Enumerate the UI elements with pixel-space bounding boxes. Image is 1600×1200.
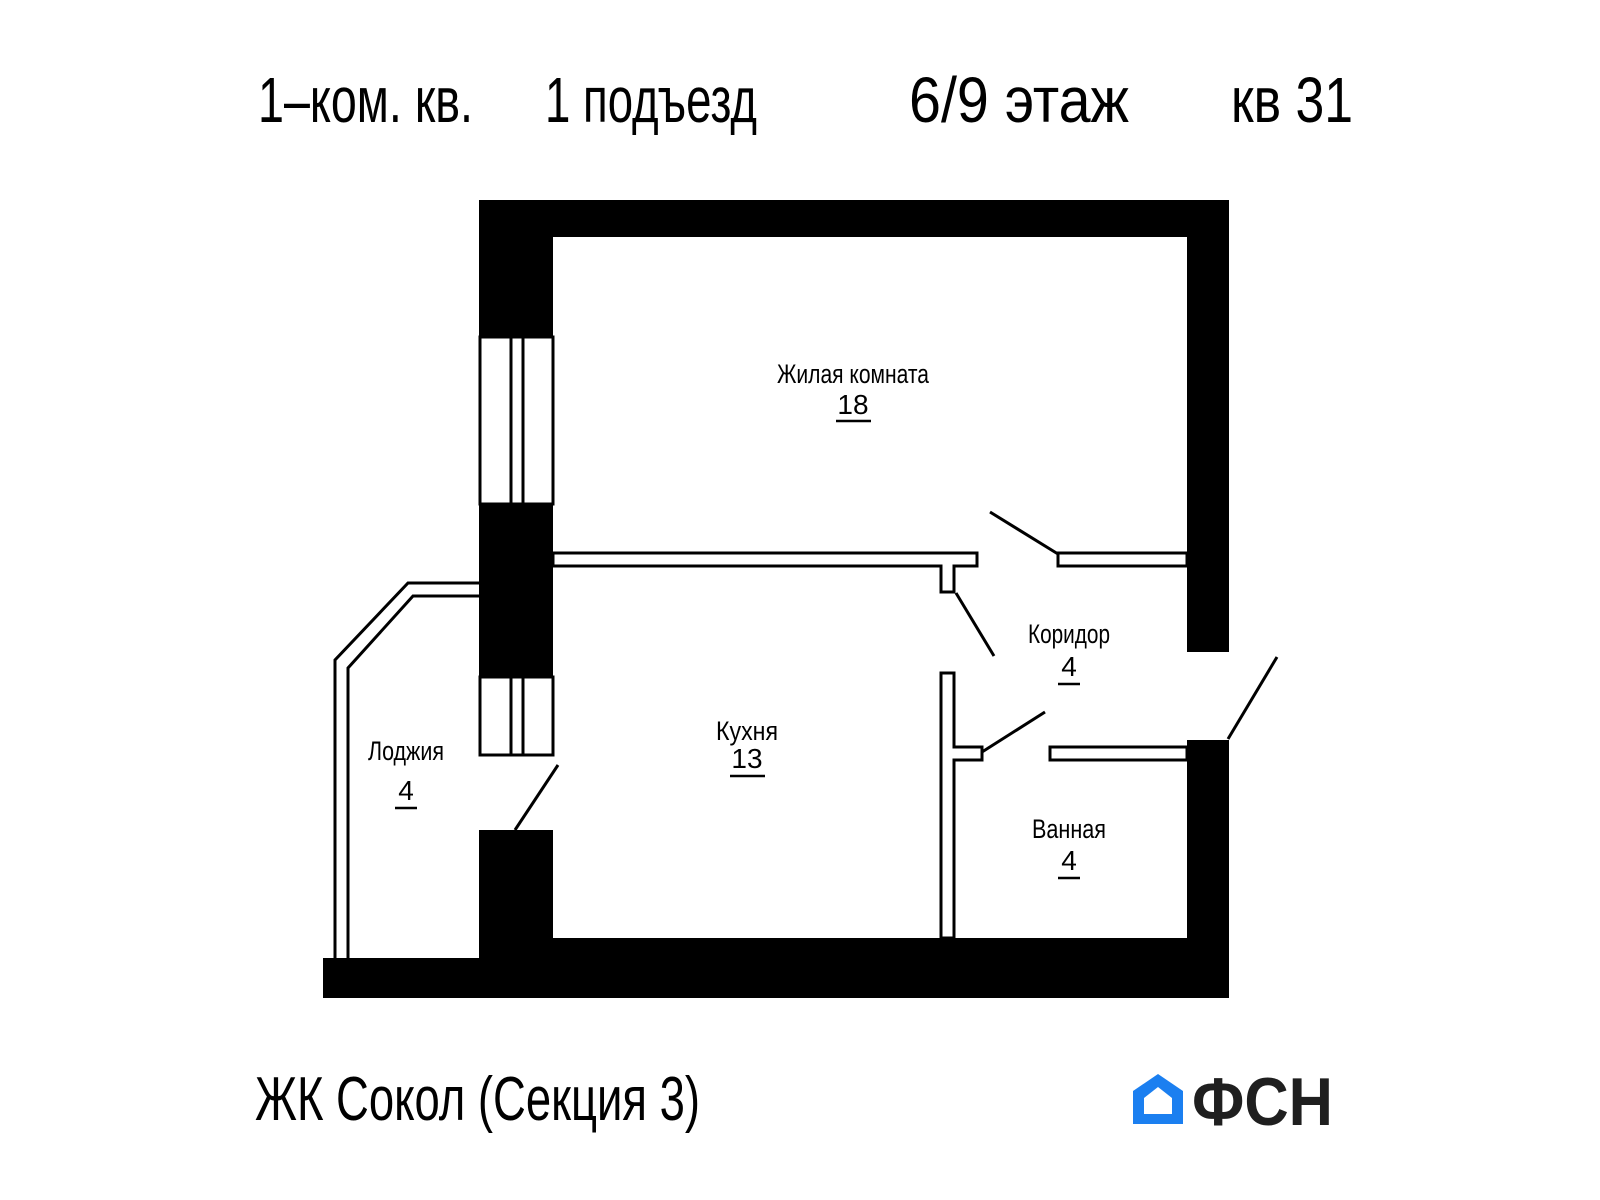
wall-right-upper — [1187, 237, 1229, 652]
room-label-corridor: Коридор — [1028, 619, 1110, 649]
room-label-living: Жилая комната — [777, 359, 930, 389]
partition-kitchen-corridor — [941, 673, 982, 938]
wall-top — [479, 200, 1229, 237]
logo-text: ФСН — [1192, 1064, 1333, 1140]
room-area-corridor: 4 — [1061, 651, 1077, 682]
footer-project-name: ЖК Сокол (Секция 3) — [255, 1065, 700, 1134]
header-apartment-type: 1–ком. кв. — [258, 64, 473, 136]
window-living-room — [480, 337, 553, 504]
loggia-outer-line — [335, 583, 480, 958]
partition-bathroom-top — [1050, 747, 1187, 760]
room-area-loggia: 4 — [398, 775, 414, 806]
room-label-loggia: Лоджия — [368, 736, 444, 766]
outer-walls — [323, 200, 1229, 998]
loggia-inner-line — [348, 596, 480, 958]
header-entrance: 1 подъезд — [545, 64, 757, 136]
header-floor: 6/9 этаж — [909, 64, 1129, 136]
window-frame-icon — [480, 337, 553, 504]
partitions — [553, 553, 1187, 938]
room-label-bathroom: Ванная — [1032, 814, 1106, 844]
room-area-bathroom: 4 — [1061, 845, 1077, 876]
wall-loggia-bottom — [323, 958, 553, 998]
entrance-door-swing-icon — [1228, 657, 1277, 739]
window-balcony — [480, 677, 553, 755]
kitchen-door-swing-icon — [956, 593, 994, 656]
partition-living-corridor — [1058, 553, 1187, 566]
logo: ФСН — [1133, 1064, 1333, 1140]
bathroom-door-swing-icon — [982, 712, 1045, 752]
room-label-kitchen: Кухня — [716, 716, 778, 746]
partition-living-kitchen — [553, 553, 977, 592]
floorplan-page: 1–ком. кв. 1 подъезд 6/9 этаж кв 31 — [0, 0, 1600, 1200]
wall-left-middle — [479, 504, 553, 677]
floorplan-canvas: 1–ком. кв. 1 подъезд 6/9 этаж кв 31 — [0, 0, 1600, 1200]
header-apartment-number: кв 31 — [1231, 64, 1353, 136]
wall-left-upper — [479, 200, 553, 337]
wall-bottom — [553, 938, 1229, 998]
window-frame-icon — [480, 677, 553, 755]
loggia-outline — [335, 583, 480, 958]
living-room-door-swing-icon — [990, 512, 1058, 554]
room-area-living: 18 — [837, 389, 868, 420]
room-area-kitchen: 13 — [731, 743, 762, 774]
balcony-door-swing-icon — [515, 765, 558, 830]
